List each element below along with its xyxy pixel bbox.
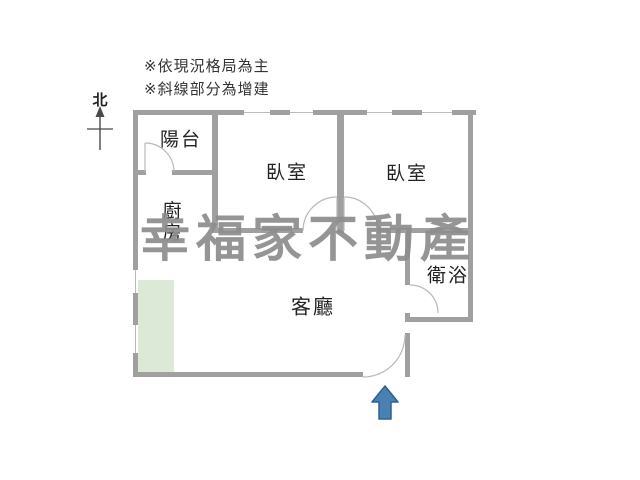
addition-area (138, 280, 174, 373)
room-label-living-room: 客廳 (291, 291, 335, 320)
wall-entrance-stub (405, 333, 410, 377)
note-line-1: ※依現況格局為主 (144, 55, 270, 78)
room-label-balcony: 陽台 (160, 125, 202, 152)
wall-balcony-divider-2 (172, 170, 218, 175)
plan-notes: ※依現況格局為主 ※斜線部分為增建 (144, 55, 270, 101)
north-arrow-icon (80, 103, 122, 155)
room-label-bedroom-1: 臥室 (266, 158, 308, 185)
window-top-1 (244, 112, 270, 113)
window-left-2 (135, 325, 136, 353)
wall-bath-left-lower (405, 313, 410, 317)
wall-balcony-divider-1 (138, 170, 146, 175)
window-left-1 (135, 270, 136, 293)
entrance-door-arc (363, 335, 405, 377)
window-top-3 (367, 112, 392, 113)
floor-plan: ※依現況格局為主 ※斜線部分為增建 北 (0, 0, 640, 480)
wall-bottom (133, 372, 363, 377)
room-label-bedroom-2: 臥室 (386, 159, 428, 186)
bathroom-door-arc (410, 285, 438, 313)
wall-top-4 (392, 110, 422, 115)
window-top-4 (422, 112, 452, 113)
note-line-2: ※斜線部分為增建 (144, 78, 270, 101)
wall-left-1 (133, 110, 138, 270)
wall-bath-bottom (405, 317, 473, 322)
wall-left-2 (133, 293, 138, 325)
wall-top-1 (133, 110, 244, 115)
wall-top-2 (270, 110, 290, 115)
window-top-2 (290, 112, 313, 113)
agency-watermark: 幸福家不動產 (140, 213, 476, 265)
